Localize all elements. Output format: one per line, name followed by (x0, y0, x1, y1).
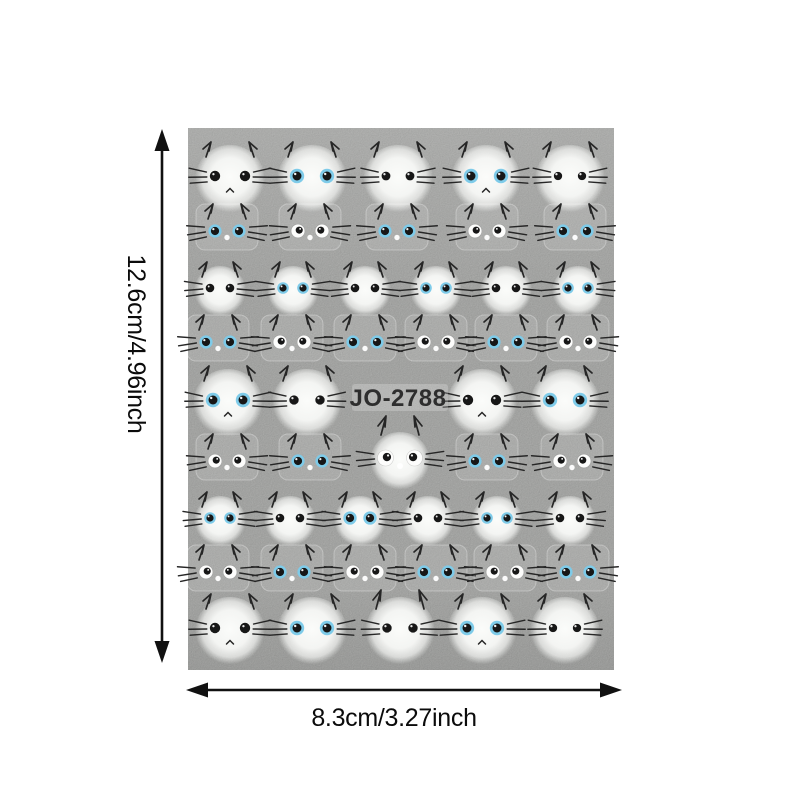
eye (240, 171, 250, 181)
nose-dot (569, 465, 574, 470)
cat-face-sticker (395, 545, 478, 591)
arrowhead-right (600, 683, 622, 698)
arrowhead-left (186, 683, 208, 698)
eye (578, 172, 586, 180)
width-dimension-label: 8.3cm/3.27inch (311, 704, 476, 732)
nose-dot (215, 346, 220, 351)
eye (512, 284, 521, 293)
eye (210, 623, 220, 633)
cat-face-sticker (534, 204, 617, 250)
face-circle (365, 597, 435, 667)
product-photo: JO-2788 12.6cm/4.96inch 8.3cm/3.27inch (0, 0, 800, 800)
cat-face-sticker (531, 434, 614, 480)
eye (210, 171, 220, 181)
eye (371, 284, 380, 293)
face-circle (480, 266, 532, 318)
eye (296, 514, 305, 523)
cat-face-sticker (356, 204, 439, 250)
face-circle (530, 597, 600, 667)
nose-dot (484, 235, 489, 240)
nose-dot (224, 235, 229, 240)
eye (289, 395, 298, 404)
eye (382, 623, 391, 632)
cat-face-sticker (324, 545, 407, 591)
nose-dot (215, 576, 220, 581)
cat-face-sticker (446, 434, 529, 480)
nose-dot (503, 346, 508, 351)
cat-face-sticker (186, 434, 269, 480)
nose-dot (433, 576, 438, 581)
face-circle (264, 496, 316, 548)
nose-dot (502, 576, 507, 581)
product-code-label: JO-2788 (350, 385, 447, 412)
arrowhead-up (155, 129, 170, 151)
eye (406, 172, 415, 181)
face-circle (277, 597, 347, 667)
eye (556, 514, 565, 523)
nose-dot (394, 235, 399, 240)
nose-dot (484, 465, 489, 470)
width-arrow (186, 683, 622, 698)
eye (573, 624, 581, 632)
eye (226, 284, 235, 293)
face-circle (193, 369, 263, 439)
face-circle (552, 266, 604, 318)
face-circle (195, 597, 265, 667)
nose-dot (289, 576, 294, 581)
face-circle (272, 369, 342, 439)
eye (240, 623, 250, 633)
face-circle (339, 266, 391, 318)
eye (408, 623, 417, 632)
eye (315, 395, 324, 404)
cat-face-sticker (537, 545, 620, 591)
face-circle (530, 369, 600, 439)
eye (549, 624, 557, 632)
cat-face-sticker (465, 315, 548, 361)
face-circle (334, 496, 386, 548)
eye (554, 172, 562, 180)
nose-dot (575, 576, 580, 581)
eye (351, 284, 360, 293)
eye (382, 172, 391, 181)
cat-face-sticker (177, 315, 260, 361)
cat-face-sticker (537, 315, 620, 361)
nose-dot (362, 576, 367, 581)
nose-dot (307, 235, 312, 240)
nose-dot (575, 346, 580, 351)
nose-dot (307, 465, 312, 470)
face-circle (471, 496, 523, 548)
face-circle (544, 496, 596, 548)
face-circle (410, 266, 462, 318)
face-circle (447, 597, 517, 667)
eye (576, 514, 585, 523)
eye (434, 514, 443, 523)
height-dimension-label: 12.6cm/4.96inch (122, 255, 150, 434)
cat-face-sticker (464, 545, 547, 591)
cat-face-sticker (395, 315, 478, 361)
face-circle (447, 369, 517, 439)
arrowhead-down (155, 641, 170, 663)
cat-face-sticker (324, 315, 407, 361)
eye (276, 514, 285, 523)
cat-face-sticker (186, 204, 269, 250)
nose-dot (362, 346, 367, 351)
face-circle (402, 496, 454, 548)
face-circle (194, 496, 246, 548)
cat-face-sticker (269, 434, 352, 480)
cat-face-sticker (446, 204, 529, 250)
nose-dot (224, 465, 229, 470)
cat-face-sticker (251, 545, 334, 591)
cat-face-sticker (251, 315, 334, 361)
height-arrow (155, 129, 170, 663)
cat-face-sticker (177, 545, 260, 591)
nose-dot (572, 235, 577, 240)
nose-dot (397, 463, 403, 469)
eye (206, 284, 215, 293)
face-circle (194, 266, 246, 318)
face-circle (267, 266, 319, 318)
eye (414, 514, 423, 523)
eye (492, 284, 501, 293)
eye (491, 395, 501, 405)
nose-dot (433, 346, 438, 351)
nose-dot (289, 346, 294, 351)
cat-face-sticker (269, 204, 352, 250)
eye (463, 395, 473, 405)
product-photo-canvas: JO-2788 12.6cm/4.96inch 8.3cm/3.27inch (0, 0, 800, 800)
